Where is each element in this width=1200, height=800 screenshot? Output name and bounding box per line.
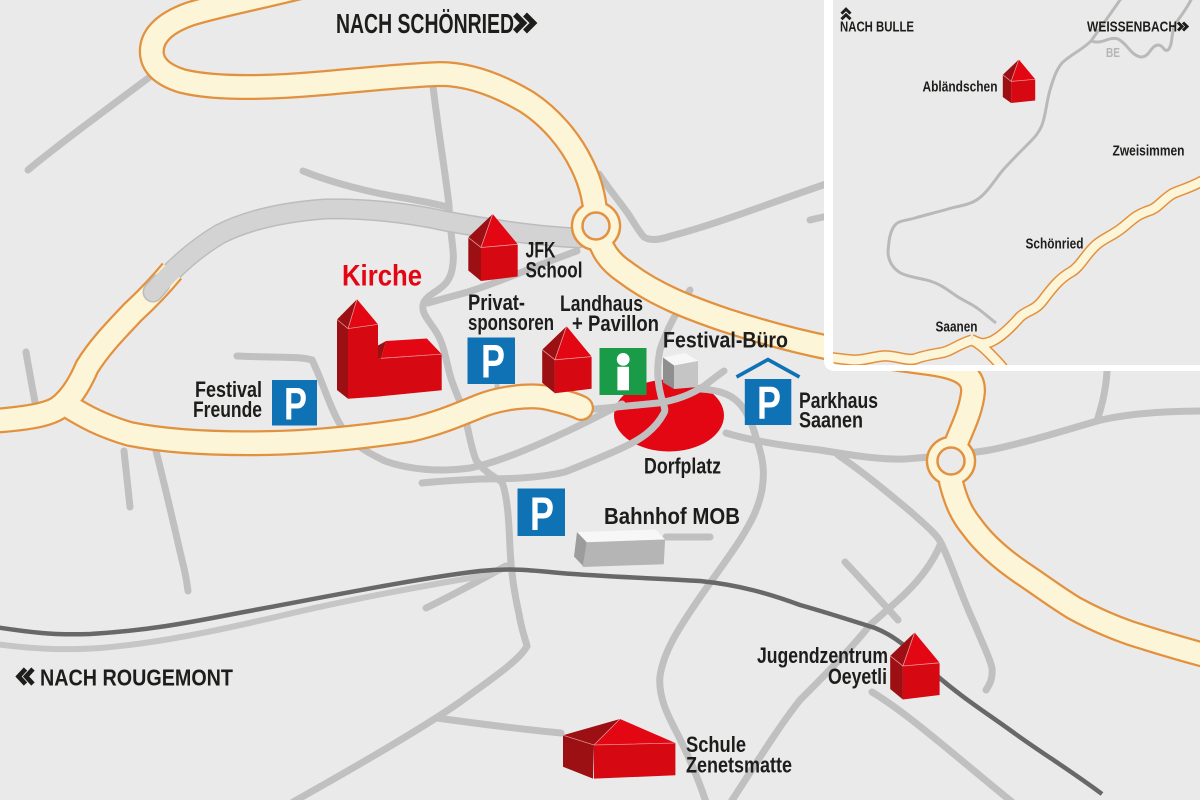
svg-text:P: P: [530, 487, 554, 540]
svg-text:Abländschen: Abländschen: [923, 79, 998, 96]
svg-text:sponsoren: sponsoren: [468, 310, 554, 335]
svg-text:Zenetsmatte: Zenetsmatte: [686, 753, 792, 778]
svg-text:Kirche: Kirche: [342, 260, 422, 293]
svg-text:Freunde: Freunde: [193, 397, 262, 422]
svg-text:NACH BULLE: NACH BULLE: [840, 19, 914, 36]
svg-text:NACH ROUGEMONT: NACH ROUGEMONT: [40, 665, 233, 691]
svg-text:Zweisimmen: Zweisimmen: [1113, 143, 1185, 160]
svg-text:+ Pavillon: + Pavillon: [572, 311, 659, 336]
svg-text:Schönried: Schönried: [1026, 236, 1084, 253]
svg-text:School: School: [526, 258, 583, 283]
svg-text:NACH SCHÖNRIED: NACH SCHÖNRIED: [336, 8, 514, 39]
svg-text:BE: BE: [1106, 45, 1120, 60]
svg-text:P: P: [757, 377, 781, 429]
svg-text:P: P: [284, 379, 307, 430]
svg-text:Saanen: Saanen: [936, 319, 978, 336]
svg-text:Oeyetli: Oeyetli: [828, 664, 887, 689]
svg-text:Dorfplatz: Dorfplatz: [644, 454, 721, 479]
svg-text:P: P: [481, 335, 505, 388]
svg-text:Saanen: Saanen: [799, 408, 863, 433]
svg-text:WEISSENBACH: WEISSENBACH: [1087, 19, 1177, 36]
svg-text:Festival-Büro: Festival-Büro: [663, 328, 788, 353]
svg-text:Bahnhof MOB: Bahnhof MOB: [604, 503, 740, 529]
